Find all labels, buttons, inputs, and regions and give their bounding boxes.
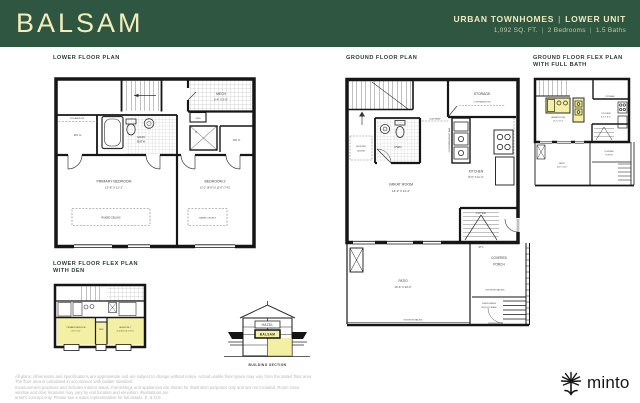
flex-primary-bedroom-dims: 13'-8" X 11'-1" (71, 331, 81, 333)
raised-ceiling-label: RAISED CEILING (199, 217, 216, 220)
dropped-ceiling-label-1: DROPPED (356, 146, 366, 148)
lower-flex-plan-drawing: PRIMARY BEDROOM 13'-8" X 11'-1" DEN BEDR… (50, 280, 154, 372)
dropped-ceiling-label-2: CEILING (357, 151, 365, 153)
exterior-railing-label: EXTERIOR RAILING (404, 319, 423, 322)
minto-logo: minto (559, 369, 630, 396)
room-label-covered-porch-1: COVERED (491, 256, 507, 260)
stair-label-st1: ST-1 (478, 246, 484, 249)
section-hazel-label: HAZEL (262, 323, 274, 327)
lower-floor-plan-drawing: W.I.C. LOW HEADROOM MAIN BATH MECH 6'-4"… (50, 68, 260, 252)
room-label-pwd: PWD (395, 145, 403, 149)
ground-flex-plan-drawing: GREAT ROOM 14'-2" X 11'-4" KITCHEN 8'-6"… (530, 76, 638, 194)
bulkhead-label: BULKHEAD (430, 118, 441, 121)
room-label-main-bath-1: MAIN (137, 135, 145, 139)
risers-label-2: REQ'D BY GRADE (481, 306, 497, 309)
room-label-kitchen: KITCHEN (469, 170, 484, 174)
raised-ceiling-label: RAISED CEILING (101, 217, 120, 220)
room-label-foyer: FOYER (476, 211, 486, 215)
room-label-patio: PATIO (398, 279, 408, 283)
header-separator: | (590, 27, 592, 34)
flex-kitchen-dims: 8'-6" X 11'-4" (601, 117, 611, 119)
building-section-caption: BUILDING SECTION (249, 363, 287, 367)
room-label-covered-porch-2: PORCH (493, 263, 505, 267)
breakfast-bar-label: FLUSH BREAKFAST BAR (448, 127, 451, 152)
room-dims-bedroom2: 12'-2" (8'-8") X 11'-0" (7'-6") (200, 187, 230, 190)
floorplan-sheet: BALSAM URBAN TOWNHOMES|LOWER UNIT 1,092 … (0, 0, 640, 403)
room-label-linen: LINEN (195, 118, 201, 120)
exterior-railing-label: EXTERIOR RAILING (486, 289, 505, 292)
disclaimer-line-3: artist's concept only. Please see a sale… (15, 395, 315, 400)
sqft-label: 1,092 SQ. FT. (494, 27, 538, 34)
low-headroom-label: LOW HEADROOM (474, 101, 491, 104)
ground-floor-plan-drawing: FLUSH BREAKFAST BAR STORAGE LOW HEADROOM… (343, 68, 539, 338)
room-label-bedroom2: BEDROOM 2 (204, 180, 225, 184)
flex-patio-label: PATIO (559, 162, 565, 165)
lower-flex-title-line2: WITH DEN (53, 268, 138, 275)
flex-covered-porch-label-2: PORCH (605, 155, 613, 157)
disclaimer-line-1: All plans, dimensions and specifications… (15, 374, 315, 385)
header-specs-line: 1,092 SQ. FT.|2 Bedrooms|1.5 Baths (454, 27, 626, 34)
header-right: URBAN TOWNHOMES|LOWER UNIT 1,092 SQ. FT.… (454, 14, 626, 34)
flex-den-label: DEN (99, 329, 104, 331)
ground-flex-title: GROUND FLOOR FLEX PLAN WITH FULL BATH (533, 55, 623, 69)
room-dims-mech: 6'-4" X 5'-0" (214, 98, 228, 102)
room-label-wic2: W.I.C. (233, 138, 241, 142)
header-collection-line: URBAN TOWNHOMES|LOWER UNIT (454, 14, 626, 24)
flex-kitchen-label: KITCHEN (601, 113, 611, 115)
room-dims-kitchen: 8'-6" X 11'-4" (468, 175, 483, 179)
ground-flex-title-line2: WITH FULL BATH (533, 62, 623, 69)
flex-bedroom2-dims: 12'-2" (8'-8") X 11'-0" (7'-6") (117, 331, 134, 333)
lower-flex-title: LOWER FLOOR FLEX PLAN WITH DEN (53, 261, 138, 275)
unit-label: LOWER UNIT (565, 14, 626, 24)
baths-label: 1.5 Baths (596, 27, 626, 34)
flex-patio-dims: 16'-6" X 10'-0" (557, 167, 568, 169)
flex-great-room-dims: 14'-2" X 11'-4" (553, 121, 564, 123)
building-section-drawing: HAZEL BALSAM BUILDING SECTION (222, 296, 352, 374)
minto-tree-icon (559, 369, 583, 396)
legal-disclaimer: All plans, dimensions and specifications… (15, 374, 315, 400)
room-dims-great-room: 14'-2" X 11'-4" (392, 189, 410, 193)
section-balsam-label: BALSAM (260, 333, 275, 337)
page-title: BALSAM (16, 8, 144, 39)
ground-plan-title: GROUND FLOOR PLAN (346, 55, 417, 62)
flex-bedroom2-label: BEDROOM 2 (119, 327, 130, 329)
bedrooms-label: 2 Bedrooms (548, 27, 586, 34)
header-separator: | (542, 27, 544, 34)
header-bar: BALSAM URBAN TOWNHOMES|LOWER UNIT 1,092 … (0, 0, 640, 47)
room-label-wic1: W.I.C. (74, 133, 82, 137)
low-headroom-label: LOW HEADROOM (70, 117, 85, 120)
flex-great-room-label: GREAT ROOM (551, 116, 565, 119)
disclaimer-line-2: measurement practices and includes inter… (15, 385, 315, 396)
minto-wordmark: minto (587, 373, 630, 393)
ground-flex-title-line1: GROUND FLOOR FLEX PLAN (533, 55, 623, 62)
room-label-primary-bedroom: PRIMARY BEDROOM (97, 180, 132, 184)
flex-primary-bedroom-label: PRIMARY BEDROOM (67, 326, 86, 329)
room-dims-patio: 16'-6" X 10'-0" (395, 285, 412, 289)
header-separator: | (558, 14, 561, 24)
risers-label-1: RISERS WHERE (482, 303, 497, 305)
lower-plan-title: LOWER FLOOR PLAN (53, 55, 120, 62)
flex-covered-porch-label-1: COVERED (604, 151, 614, 153)
room-label-mech: MECH (216, 92, 226, 96)
flex-storage-label: STORAGE (605, 95, 615, 98)
room-label-great-room: GREAT ROOM (389, 183, 413, 187)
dryer-label: D (195, 130, 197, 134)
room-dims-primary-bedroom: 13'-8" X 11'-1" (105, 186, 123, 190)
collection-label: URBAN TOWNHOMES (454, 14, 555, 24)
room-label-main-bath-2: BATH (137, 140, 145, 144)
lower-flex-title-line1: LOWER FLOOR FLEX PLAN (53, 261, 138, 268)
room-label-storage: STORAGE (474, 92, 491, 96)
